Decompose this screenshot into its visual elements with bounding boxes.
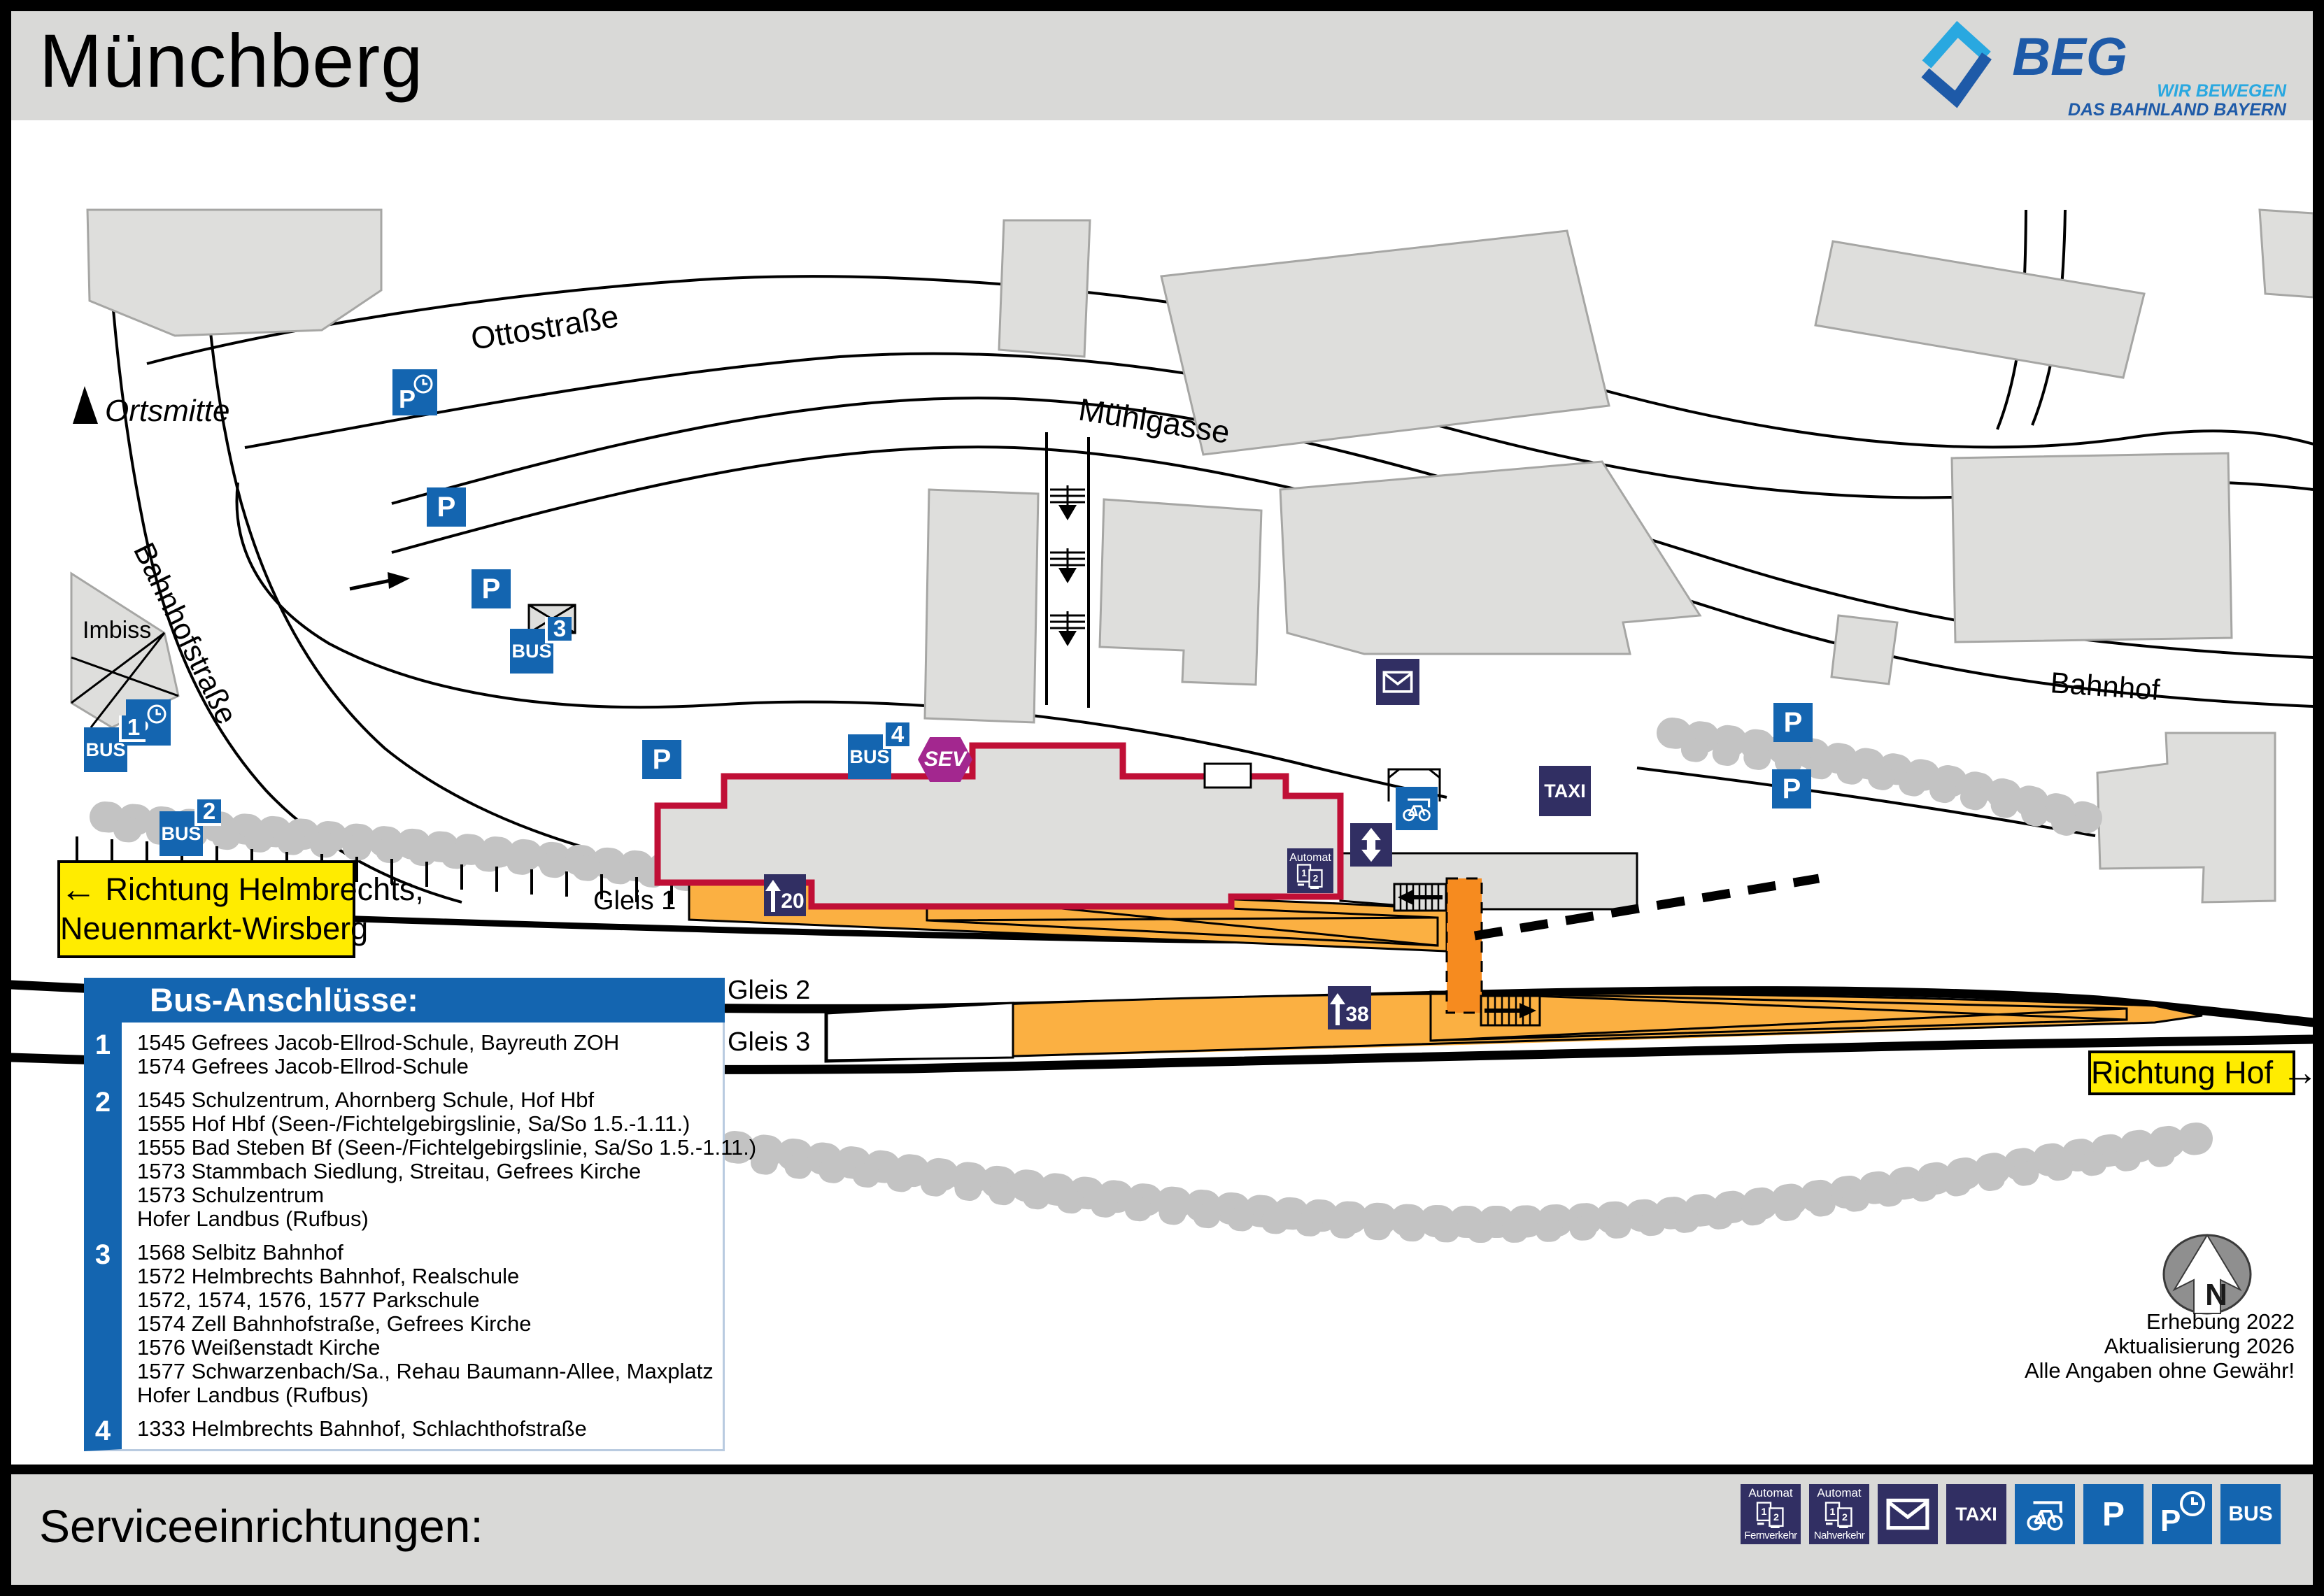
mailbox-icon: [1376, 659, 1419, 705]
bus-stop-number: 2: [194, 799, 221, 826]
platform-gleis23-uncovered: [827, 1003, 1013, 1060]
arrow-left-icon: ←: [60, 869, 97, 910]
arrow-up-icon: [1330, 993, 1345, 1027]
bus-stop-1-icon: BUS1: [84, 727, 127, 772]
bus-connections-legend: Bus-Anschlüsse: 1 1545 Gefrees Jacob-Ell…: [84, 978, 725, 1451]
track-crossing: [1447, 878, 1482, 1013]
bus-service-icon: BUS: [2220, 1484, 2281, 1544]
svg-text:1: 1: [1301, 868, 1307, 878]
arrow-up-icon: [765, 880, 781, 913]
legend-line: Hofer Landbus (Rufbus): [137, 1383, 716, 1407]
legend-line: 1545 Gefrees Jacob-Ellrod-Schule, Bayreu…: [137, 1031, 716, 1055]
street-label-ottostrasse: Ottostraße: [469, 298, 621, 357]
legend-line: 1572, 1574, 1576, 1577 Parkschule: [137, 1288, 716, 1312]
platform-length-gleis1: 20: [764, 874, 806, 916]
service-icons: Automat 12 Fernverkehr Automat 12 Nahver…: [1741, 1484, 2281, 1544]
bus-stop-3-icon: BUS3: [510, 629, 553, 674]
clock-icon: [413, 373, 434, 394]
svg-text:2: 2: [1773, 1511, 1779, 1523]
taxi-icon: TAXI: [1539, 766, 1591, 816]
legend-group-number: 3: [84, 1239, 122, 1271]
arrow-right-icon: →: [2282, 1053, 2313, 1093]
mail-icon: [1878, 1484, 1938, 1544]
direction-sign-helmbrechts: ← Richtung Helmbrechts, Neuenmarkt-Wirsb…: [57, 860, 355, 958]
legend-group-2: 2 1545 Schulzentrum, Ahornberg Schule, H…: [137, 1088, 716, 1231]
legend-line: 1568 Selbitz Bahnhof: [137, 1241, 716, 1264]
legend-line: 1574 Gefrees Jacob-Ellrod-Schule: [137, 1055, 716, 1078]
gleis3-label: Gleis 3: [728, 1027, 810, 1057]
page-title: Münchberg: [39, 17, 423, 104]
bike-parking-icon: [1396, 787, 1438, 830]
svg-text:N: N: [2205, 1278, 2227, 1312]
survey-line: Erhebung 2022: [2015, 1309, 2295, 1334]
direction-sign-hof: Richtung Hof →: [2088, 1050, 2295, 1095]
bus-stop-4-icon: BUS4: [848, 734, 891, 779]
stairs-icon: [1050, 485, 1085, 520]
automat-fernverkehr-icon: Automat 12 Fernverkehr: [1741, 1484, 1801, 1544]
platform-length-gleis23: 38: [1328, 986, 1371, 1029]
beg-logo: BEG WIR BEWEGEN DAS BAHNLAND BAYERN: [1816, 11, 2306, 120]
taxi-service-icon: TAXI: [1946, 1484, 2006, 1544]
legend-group-1: 1 1545 Gefrees Jacob-Ellrod-Schule, Bayr…: [137, 1031, 716, 1078]
svg-text:2: 2: [1313, 874, 1319, 884]
bike-parking-service-icon: [2015, 1484, 2075, 1544]
beg-tagline-1: WIR BEWEGEN: [2157, 81, 2286, 101]
bus-stop-number: 4: [883, 722, 909, 749]
survey-line: Alle Angaben ohne Gewähr!: [2015, 1358, 2295, 1383]
legend-line: 1576 Weißenstadt Kirche: [137, 1336, 716, 1360]
legend-group-number: 1: [84, 1029, 122, 1061]
gleis2-label: Gleis 2: [728, 976, 810, 1005]
compass-north-icon: N: [2164, 1235, 2251, 1313]
poi-label-ortsmitte: Ortsmitte: [105, 394, 229, 428]
short-term-parking-service-icon: P: [2152, 1484, 2212, 1544]
bus-stop-2-icon: BUS2: [160, 811, 203, 856]
legend-line: 1574 Zell Bahnhofstraße, Gefrees Kirche: [137, 1312, 716, 1336]
legend-group-4: 4 1333 Helmbrechts Bahnhof, Schlachthofs…: [137, 1417, 716, 1441]
footer-band: Serviceeinrichtungen: Automat 12 Fernver…: [11, 1465, 2313, 1585]
stairs-icon: [1050, 611, 1085, 646]
beg-tagline-2: DAS BAHNLAND BAYERN: [2068, 100, 2286, 120]
station-map: N Ottostraße Mühlgasse Bahnhofstraße Bah…: [11, 120, 2313, 1474]
ortsmitte-marker-icon: [73, 386, 98, 424]
parking-icon: P: [642, 740, 681, 779]
short-term-parking-icon: P: [392, 369, 437, 415]
parking-icon: P: [1773, 703, 1813, 742]
legend-line: 1573 Schulzentrum: [137, 1183, 716, 1207]
stairs-gleis23-icon: [1481, 996, 1540, 1025]
legend-line: 1577 Schwarzenbach/Sa., Rehau Baumann-Al…: [137, 1360, 716, 1383]
legend-line: Hofer Landbus (Rufbus): [137, 1207, 716, 1231]
station-entrance: [1205, 764, 1251, 788]
legend-line: 1545 Schulzentrum, Ahornberg Schule, Hof…: [137, 1088, 716, 1112]
header-band: Münchberg BEG WIR BEWEGEN DAS BAHNLAND B…: [11, 11, 2313, 120]
footer-title: Serviceeinrichtungen:: [39, 1499, 483, 1553]
station-map-page: Münchberg BEG WIR BEWEGEN DAS BAHNLAND B…: [0, 0, 2324, 1596]
legend-group-3: 3 1568 Selbitz Bahnhof 1572 Helmbrechts …: [137, 1241, 716, 1407]
stairs-icon: [1050, 548, 1085, 583]
legend-group-number: 2: [84, 1087, 122, 1118]
clock-icon: [146, 704, 167, 725]
level-access-icon: [1350, 823, 1392, 867]
legend-title: Bus-Anschlüsse:: [84, 978, 725, 1023]
clock-icon: [2178, 1490, 2206, 1518]
stairs-gleis1-icon: [1394, 884, 1446, 911]
legend-line: 1572 Helmbrechts Bahnhof, Realschule: [137, 1264, 716, 1288]
parking-icon: P: [472, 569, 511, 608]
legend-line: 1573 Stammbach Siedlung, Streitau, Gefre…: [137, 1160, 716, 1183]
bus-stop-number: 3: [545, 617, 572, 643]
poi-label-imbiss: Imbiss: [83, 617, 151, 643]
svg-text:2: 2: [1842, 1511, 1848, 1523]
legend-group-number: 4: [84, 1416, 122, 1447]
survey-line: Aktualisierung 2026: [2015, 1334, 2295, 1358]
parking-icon: P: [427, 487, 466, 527]
ticket-machine-icon: Automat 12: [1287, 848, 1333, 893]
gleis1-label: Gleis 1: [593, 886, 676, 915]
parking-service-icon: P: [2083, 1484, 2144, 1544]
svg-text:1: 1: [1762, 1506, 1767, 1518]
beg-wordmark: BEG: [2012, 27, 2127, 87]
legend-line: 1555 Bad Steben Bf (Seen-/Fichtelgebirgs…: [137, 1136, 716, 1160]
automat-nahverkehr-icon: Automat 12 Nahverkehr: [1809, 1484, 1869, 1544]
legend-line: 1555 Hof Hbf (Seen-/Fichtelgebirgslinie,…: [137, 1112, 716, 1136]
survey-note: Erhebung 2022 Aktualisierung 2026 Alle A…: [2015, 1309, 2295, 1383]
one-way-arrow-icon: [350, 572, 410, 589]
parking-icon: P: [1772, 769, 1811, 808]
beg-diamond-icon: [1914, 21, 1998, 108]
street-label-bahnhof: Bahnhof: [2049, 666, 2161, 706]
bus-stop-number: 1: [119, 715, 146, 742]
legend-line: 1333 Helmbrechts Bahnhof, Schlachthofstr…: [137, 1417, 716, 1441]
svg-text:1: 1: [1830, 1506, 1836, 1518]
